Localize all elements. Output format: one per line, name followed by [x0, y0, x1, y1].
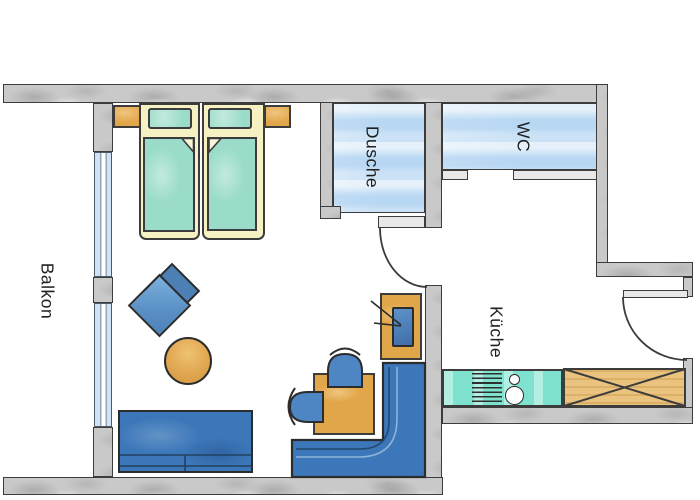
sink-large-basin — [505, 386, 524, 405]
nightstand-left — [113, 105, 141, 128]
shower-label: Dusche — [362, 126, 383, 188]
stove — [472, 373, 502, 403]
wall-balcony-top-segment — [93, 103, 113, 152]
nightstand-right — [264, 105, 291, 128]
chair-top-backrest — [330, 349, 360, 356]
floor-plan: Balkon Dusche WC Küche — [0, 0, 700, 500]
balcony-label: Balkon — [37, 263, 58, 320]
mattress-right — [207, 137, 257, 231]
wall-shower-wc-divider — [425, 102, 442, 228]
hall-door-swing-arc — [380, 228, 427, 287]
tv — [392, 307, 414, 347]
wall-shower-left — [320, 102, 333, 212]
wc-door-sill-left — [442, 170, 468, 180]
chair-left-backrest — [289, 388, 296, 425]
wall-balcony-bottom-segment — [93, 427, 113, 477]
base-cabinet — [563, 368, 686, 407]
mattress-left — [143, 137, 195, 232]
balcony-window-upper — [94, 152, 112, 277]
wc-door-sill-right — [513, 170, 597, 180]
wall-shower-left-foot — [320, 206, 341, 219]
dining-table — [313, 373, 375, 435]
sofa — [118, 410, 253, 473]
balcony-window-lower — [94, 303, 112, 427]
wall-hall-vertical — [425, 285, 442, 480]
round-table — [164, 337, 212, 385]
wall-wc-right — [596, 84, 608, 277]
sink-small-basin — [509, 374, 520, 385]
wall-kitchen-bottom — [442, 407, 693, 424]
pillow-left — [148, 108, 192, 129]
pillow-right — [208, 108, 252, 129]
wall-top — [3, 84, 608, 103]
wall-step-top-right — [596, 262, 693, 277]
wc-label: WC — [513, 122, 534, 152]
entry-door-swing-arc — [623, 297, 687, 360]
kitchen-counter — [442, 369, 563, 407]
wall-balcony-mid-segment — [93, 277, 113, 303]
wall-bottom — [3, 477, 443, 495]
entry-door-leaf — [623, 290, 688, 298]
shower-door-leaf — [378, 216, 425, 228]
kitchen-label: Küche — [486, 306, 507, 358]
